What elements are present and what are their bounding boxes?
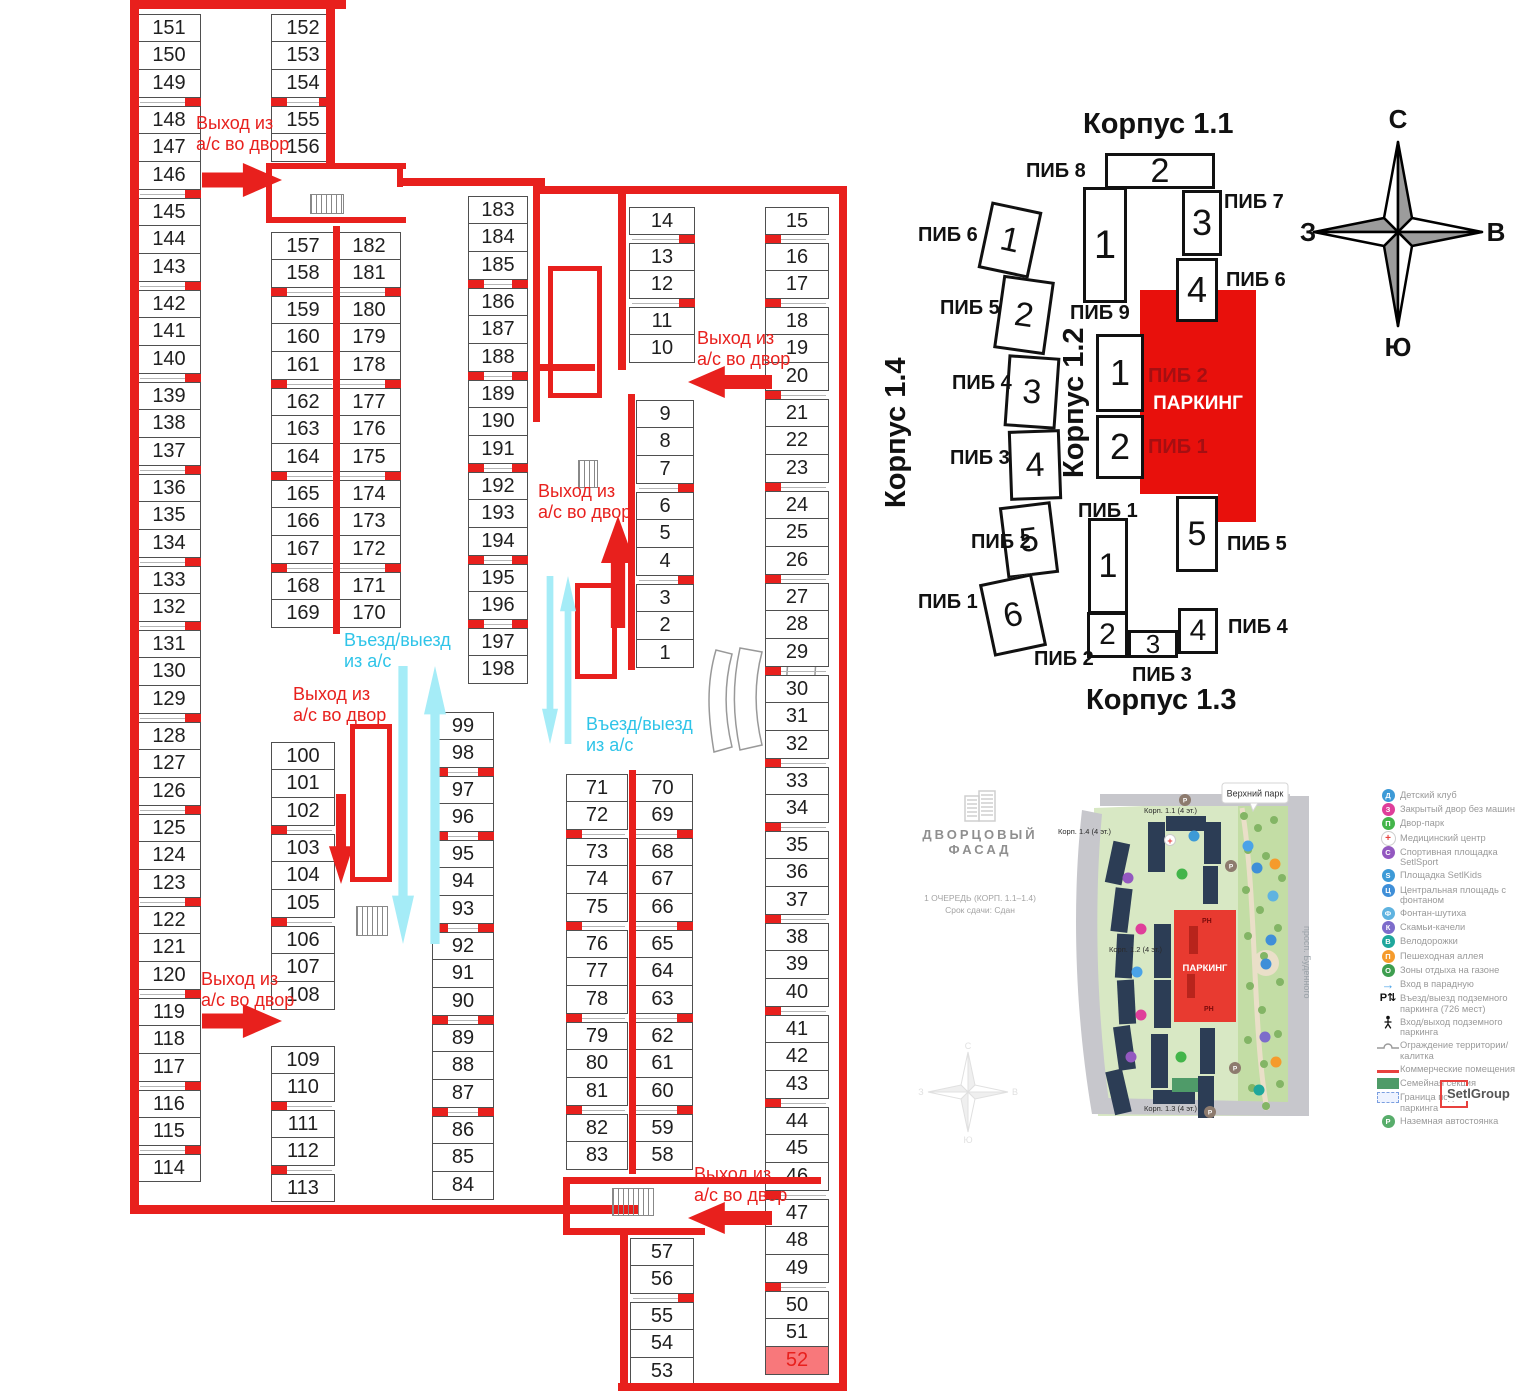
wall-tick xyxy=(271,826,287,834)
parking-stall-103[interactable]: 103 xyxy=(271,834,335,862)
wall-tick xyxy=(432,1016,448,1024)
pib-label: ПИБ 6 xyxy=(1226,269,1286,292)
wall-tick xyxy=(185,1082,201,1090)
wall-tick xyxy=(432,1108,448,1116)
svg-text:З: З xyxy=(918,1087,923,1097)
pib-label: ПИБ 6 xyxy=(918,224,978,247)
wall xyxy=(629,770,636,1174)
parking-stall-102[interactable]: 102 xyxy=(271,798,335,826)
brand-line1: ДВОРЦОВЫЙ xyxy=(918,827,1042,842)
parking-stall-34[interactable]: 34 xyxy=(765,795,829,823)
parking-stall-63[interactable]: 63 xyxy=(632,986,693,1014)
brand-line2: ФАСАД xyxy=(918,842,1042,857)
pib-label: ПИБ 1 xyxy=(1148,436,1208,459)
parking-stall-120[interactable]: 120 xyxy=(137,962,201,990)
parking-stall-45[interactable]: 45 xyxy=(765,1135,829,1163)
parking-stall-68[interactable]: 68 xyxy=(632,838,693,866)
parking-stall-118[interactable]: 118 xyxy=(137,1026,201,1054)
parking-stall-109[interactable]: 109 xyxy=(271,1046,335,1074)
parking-stall-83[interactable]: 83 xyxy=(566,1142,628,1170)
legend-icon-16 xyxy=(1376,1039,1400,1052)
parking-stall-111[interactable]: 111 xyxy=(271,1110,335,1138)
parking-stall-122[interactable]: 122 xyxy=(137,906,201,934)
pib-label: ПИБ 4 xyxy=(1228,616,1288,639)
parking-stall-44[interactable]: 44 xyxy=(765,1107,829,1135)
building-section: 3 xyxy=(1182,190,1222,256)
legend-icon-18 xyxy=(1376,1077,1400,1090)
parking-stall-59[interactable]: 59 xyxy=(632,1114,693,1142)
legend-item: Р⇅Въезд/выезд подземного паркинга (726 м… xyxy=(1376,992,1526,1014)
parking-stall-50[interactable]: 50 xyxy=(765,1291,829,1319)
wall-tick xyxy=(765,915,781,923)
legend-icon-1: Д xyxy=(1376,789,1400,802)
parking-stall-58[interactable]: 58 xyxy=(632,1142,693,1170)
legend-item: ППешеходная аллея xyxy=(1376,950,1526,963)
parking-stall-73[interactable]: 73 xyxy=(566,838,628,866)
wall-tick xyxy=(765,823,781,831)
legend-label: Фонтан-шутиха xyxy=(1400,907,1526,919)
parking-stall-115[interactable]: 115 xyxy=(137,1118,201,1146)
compass-east: В xyxy=(1487,217,1506,247)
building-section: 4 xyxy=(1176,258,1218,322)
stairs-icon xyxy=(612,1188,654,1216)
legend-item: ВВелодорожки xyxy=(1376,935,1526,948)
legend-icon-14: Р⇅ xyxy=(1376,992,1400,1005)
svg-text:Р: Р xyxy=(1183,798,1188,805)
wall xyxy=(620,1228,628,1388)
building-icon xyxy=(959,790,1001,822)
parking-stall-125[interactable]: 125 xyxy=(137,814,201,842)
parking-stall-121[interactable]: 121 xyxy=(137,934,201,962)
svg-text:РН: РН xyxy=(1204,1006,1214,1013)
legend-label: Площадка SetlKids xyxy=(1400,869,1526,881)
parking-stall-87[interactable]: 87 xyxy=(432,1080,494,1108)
compass-south: Ю xyxy=(1385,332,1412,360)
wall-tick xyxy=(478,768,494,776)
setl-logo-text: SetlGroup xyxy=(1447,1086,1512,1101)
parking-stall-113[interactable]: 113 xyxy=(271,1174,335,1202)
legend-item: Ограждение территории/калитка xyxy=(1376,1039,1526,1061)
svg-text:Верхний парк: Верхний парк xyxy=(1227,789,1284,799)
legend-item: РНаземная автостоянка xyxy=(1376,1115,1526,1128)
svg-text:В: В xyxy=(1012,1087,1018,1097)
legend-item: Вход/выход подземного паркинга xyxy=(1376,1016,1526,1038)
building-section: 1 xyxy=(1096,334,1144,412)
parking-stall-57[interactable]: 57 xyxy=(630,1238,694,1266)
parking-stall-84[interactable]: 84 xyxy=(432,1172,494,1200)
wall-tick xyxy=(478,1108,494,1116)
parking-stall-123[interactable]: 123 xyxy=(137,870,201,898)
parking-stall-117[interactable]: 117 xyxy=(137,1054,201,1082)
svg-text:Корп. 1.3 (4 эт.): Корп. 1.3 (4 эт.) xyxy=(1144,1104,1198,1113)
wall-tick xyxy=(478,832,494,840)
parking-stall-114[interactable]: 114 xyxy=(137,1154,201,1182)
legend-label: Вход в парадную xyxy=(1400,978,1526,990)
legend-item: ФФонтан-шутиха xyxy=(1376,907,1526,920)
parking-stall-72[interactable]: 72 xyxy=(566,802,628,830)
master-plan-map: РН РН ПАРКИНГ + Р Р Р Р Верхний парк xyxy=(1052,778,1317,1123)
legend-icon-8: Ф xyxy=(1376,907,1400,920)
building-section: 3 xyxy=(1128,630,1178,658)
legend: ДДетский клубЗЗакрытый двор без машинПДв… xyxy=(1376,789,1526,1129)
svg-text:Корп. 1.1 (4 эт.): Корп. 1.1 (4 эт.) xyxy=(1144,806,1198,815)
wall-tick xyxy=(765,1007,781,1015)
pib-label: ПИБ 2 xyxy=(971,531,1031,554)
legend-item: →Вход в парадную xyxy=(1376,978,1526,991)
parking-stall-86[interactable]: 86 xyxy=(432,1116,494,1144)
parking-stall-43[interactable]: 43 xyxy=(765,1071,829,1099)
compass-rose: С В Ю З xyxy=(1298,98,1510,360)
legend-icon-10: В xyxy=(1376,935,1400,948)
parking-stall-76[interactable]: 76 xyxy=(566,930,628,958)
parking-stall-39[interactable]: 39 xyxy=(765,951,829,979)
wall-tick xyxy=(765,1099,781,1107)
compass-west: З xyxy=(1300,217,1316,247)
wall-tick xyxy=(566,1106,582,1114)
legend-item: ССпортивная площадка SetlSport xyxy=(1376,846,1526,868)
building-section: 5 xyxy=(1176,496,1218,572)
wall-tick xyxy=(677,1014,693,1022)
legend-label: Двор-парк xyxy=(1400,817,1526,829)
parking-stall-64[interactable]: 64 xyxy=(632,958,693,986)
svg-text:Р: Р xyxy=(1229,864,1234,871)
parking-stall-88[interactable]: 88 xyxy=(432,1052,494,1080)
svg-text:Корп. 1.4 (4 эт.): Корп. 1.4 (4 эт.) xyxy=(1058,827,1112,836)
wall xyxy=(130,1205,638,1214)
legend-label: Детский клуб xyxy=(1400,789,1526,801)
parking-stall-48[interactable]: 48 xyxy=(765,1227,829,1255)
parking-stall-81[interactable]: 81 xyxy=(566,1078,628,1106)
parking-stall-37[interactable]: 37 xyxy=(765,887,829,915)
page: 1511501491481471461451441431421411401391… xyxy=(0,0,1526,1400)
parking-stall-78[interactable]: 78 xyxy=(566,986,628,1014)
wall-tick xyxy=(677,922,693,930)
pib-label: ПИБ 5 xyxy=(1227,533,1287,556)
building-section: 2 xyxy=(993,275,1055,356)
svg-text:Р: Р xyxy=(1208,1110,1213,1117)
wall-tick xyxy=(271,918,287,926)
parking-stall-38[interactable]: 38 xyxy=(765,923,829,951)
legend-icon-4: + xyxy=(1376,832,1400,845)
parking-block-label: ПАРКИНГ xyxy=(1142,393,1254,415)
legend-label: Коммерческие помещения xyxy=(1400,1063,1526,1075)
brand-sub1: 1 ОЧЕРЕДЬ (КОРП. 1.1–1.4) xyxy=(918,893,1042,903)
parking-stall-90[interactable]: 90 xyxy=(432,988,494,1016)
parking-stall-110[interactable]: 110 xyxy=(271,1074,335,1102)
pib-label: ПИБ 5 xyxy=(940,297,1000,320)
wall-tick xyxy=(478,1016,494,1024)
wall-tick xyxy=(478,924,494,932)
wall xyxy=(563,1228,705,1235)
wall-tick xyxy=(765,759,781,767)
parking-stall-104[interactable]: 104 xyxy=(271,862,335,890)
parking-stall-51[interactable]: 51 xyxy=(765,1319,829,1347)
mini-compass: С В Ю З xyxy=(916,1040,1026,1150)
legend-item: Коммерческие помещения xyxy=(1376,1063,1526,1076)
parking-stall-71[interactable]: 71 xyxy=(566,774,628,802)
wall xyxy=(563,1177,570,1235)
legend-label: Скамьи-качели xyxy=(1400,921,1526,933)
corpus-title: Корпус 1.4 xyxy=(880,357,913,508)
legend-icon-2: З xyxy=(1376,803,1400,816)
wall-tick xyxy=(677,830,693,838)
wall-tick xyxy=(185,990,201,998)
parking-stall-54[interactable]: 54 xyxy=(630,1330,694,1358)
pib-label: ПИБ 7 xyxy=(1224,191,1284,214)
wall-tick xyxy=(677,1106,693,1114)
parking-stall-119[interactable]: 119 xyxy=(137,998,201,1026)
legend-icon-3: П xyxy=(1376,817,1400,830)
parking-stall-49[interactable]: 49 xyxy=(765,1255,829,1283)
building-section: 2 xyxy=(1105,153,1215,189)
wall-tick xyxy=(271,1102,287,1110)
pib-label: ПИБ 1 xyxy=(1078,500,1138,523)
parking-stall-70[interactable]: 70 xyxy=(632,774,693,802)
building-section: 1 xyxy=(1088,518,1128,614)
wall-tick xyxy=(678,1294,694,1302)
parking-stall-89[interactable]: 89 xyxy=(432,1024,494,1052)
legend-icon-20: Р xyxy=(1376,1115,1400,1128)
legend-label: Наземная автостоянка xyxy=(1400,1115,1526,1127)
compass-north: С xyxy=(1389,104,1408,134)
legend-icon-11: П xyxy=(1376,950,1400,963)
legend-item: ЗЗакрытый двор без машин xyxy=(1376,803,1526,816)
mini-parking-label: ПАРКИНГ xyxy=(1183,963,1229,974)
parking-stall-42[interactable]: 42 xyxy=(765,1043,829,1071)
building-section: 2 xyxy=(1096,415,1144,479)
legend-label: Велодорожки xyxy=(1400,935,1526,947)
parking-stall-40[interactable]: 40 xyxy=(765,979,829,1007)
parking-stall-80[interactable]: 80 xyxy=(566,1050,628,1078)
legend-icon-6: S xyxy=(1376,869,1400,882)
svg-text:Ю: Ю xyxy=(963,1135,972,1145)
wall-tick xyxy=(185,806,201,814)
parking-stall-85[interactable]: 85 xyxy=(432,1144,494,1172)
parking-stall-74[interactable]: 74 xyxy=(566,866,628,894)
brand-sub2: Срок сдачи: Сдан xyxy=(918,905,1042,915)
legend-icon-13: → xyxy=(1376,978,1400,991)
svg-text:+: + xyxy=(1167,836,1172,846)
parking-stall-77[interactable]: 77 xyxy=(566,958,628,986)
corpus-title: Корпус 1.2 xyxy=(1058,327,1091,478)
pib-label: ПИБ 4 xyxy=(952,372,1012,395)
wall-tick xyxy=(566,1014,582,1022)
building-section: 1 xyxy=(1083,187,1127,303)
legend-item: ЦЦентральная площадь с фонтаном xyxy=(1376,884,1526,906)
parking-stall-35[interactable]: 35 xyxy=(765,831,829,859)
pib-label: ПИБ 8 xyxy=(1026,160,1086,183)
parking-stall-106[interactable]: 106 xyxy=(271,926,335,954)
legend-item: КСкамьи-качели xyxy=(1376,921,1526,934)
legend-icon-5: С xyxy=(1376,846,1400,859)
parking-stall-66[interactable]: 66 xyxy=(632,894,693,922)
legend-label: Ограждение территории/калитка xyxy=(1400,1039,1526,1061)
legend-label: Пешеходная аллея xyxy=(1400,950,1526,962)
building-section: 3 xyxy=(1004,354,1061,429)
brand-logo: ДВОРЦОВЫЙ ФАСАД 1 ОЧЕРЕДЬ (КОРП. 1.1–1.4… xyxy=(918,790,1042,915)
parking-stall-112[interactable]: 112 xyxy=(271,1138,335,1166)
parking-stall-101[interactable]: 101 xyxy=(271,770,335,798)
setl-group-logo: SetlGroup xyxy=(1440,1080,1520,1108)
legend-label: Зоны отдыха на газоне xyxy=(1400,964,1526,976)
legend-icon-9: К xyxy=(1376,921,1400,934)
legend-icon-17 xyxy=(1376,1063,1400,1076)
family-section xyxy=(1172,1078,1198,1092)
legend-label: Въезд/выезд подземного паркинга (726 мес… xyxy=(1400,992,1526,1014)
parking-stall-91[interactable]: 91 xyxy=(432,960,494,988)
legend-item: SПлощадка SetlKids xyxy=(1376,869,1526,882)
parking-stall-60[interactable]: 60 xyxy=(632,1078,693,1106)
exit-arrow xyxy=(688,1202,772,1234)
legend-item: ОЗоны отдыха на газоне xyxy=(1376,964,1526,977)
parking-stall-61[interactable]: 61 xyxy=(632,1050,693,1078)
street-label: просп. Буденного xyxy=(1302,926,1312,998)
parking-stall-126[interactable]: 126 xyxy=(137,778,201,806)
wall-tick xyxy=(271,1166,287,1174)
wall xyxy=(618,1383,847,1391)
exit-label: Выход из а/с во двор xyxy=(694,1164,787,1206)
parking-stall-55[interactable]: 55 xyxy=(630,1302,694,1330)
parking-stall-52[interactable]: 52 xyxy=(765,1347,829,1375)
legend-icon-19 xyxy=(1376,1091,1400,1104)
legend-item: +Медицинский центр xyxy=(1376,832,1526,845)
parking-stall-67[interactable]: 67 xyxy=(632,866,693,894)
exit-arrow xyxy=(329,794,353,884)
svg-text:С: С xyxy=(965,1041,972,1051)
parking-stall-79[interactable]: 79 xyxy=(566,1022,628,1050)
wall-tick xyxy=(566,922,582,930)
parking-stall-53[interactable]: 53 xyxy=(630,1358,694,1386)
pib-label: ПИБ 2 xyxy=(1034,648,1094,671)
corpus-title: Корпус 1.3 xyxy=(1086,684,1226,717)
svg-text:Корп. 1.2 (4 эт.): Корп. 1.2 (4 эт.) xyxy=(1109,945,1163,954)
legend-label: Закрытый двор без машин xyxy=(1400,803,1526,815)
exit-label: Выход из а/с во двор xyxy=(201,969,294,1011)
svg-text:Р: Р xyxy=(1233,1066,1238,1073)
parking-stall-82[interactable]: 82 xyxy=(566,1114,628,1142)
legend-label: Спортивная площадка SetlSport xyxy=(1400,846,1526,868)
parking-stall-62[interactable]: 62 xyxy=(632,1022,693,1050)
svg-text:РН: РН xyxy=(1202,918,1212,925)
parking-stall-36[interactable]: 36 xyxy=(765,859,829,887)
stairs-icon xyxy=(356,906,388,936)
building-section: 4 xyxy=(1008,429,1062,501)
legend-label: Центральная площадь с фонтаном xyxy=(1400,884,1526,906)
legend-label: Вход/выход подземного паркинга xyxy=(1400,1016,1526,1038)
pib-label: ПИБ 1 xyxy=(918,591,978,614)
parking-stall-75[interactable]: 75 xyxy=(566,894,628,922)
legend-icon-12: О xyxy=(1376,964,1400,977)
pib-label: ПИБ 3 xyxy=(950,447,1010,470)
corpus-title: Корпус 1.1 xyxy=(1083,108,1218,141)
parking-stall-124[interactable]: 124 xyxy=(137,842,201,870)
wall-tick xyxy=(765,1283,781,1291)
parking-stall-69[interactable]: 69 xyxy=(632,802,693,830)
legend-item: ДДетский клуб xyxy=(1376,789,1526,802)
pib-label: ПИБ 2 xyxy=(1148,365,1208,388)
wall-tick xyxy=(185,898,201,906)
parking-stall-41[interactable]: 41 xyxy=(765,1015,829,1043)
parking-stall-33[interactable]: 33 xyxy=(765,767,829,795)
legend-item: ПДвор-парк xyxy=(1376,817,1526,830)
legend-label: Медицинский центр xyxy=(1400,832,1526,844)
legend-icon-15 xyxy=(1376,1016,1400,1029)
parking-stall-56[interactable]: 56 xyxy=(630,1266,694,1294)
parking-stall-116[interactable]: 116 xyxy=(137,1090,201,1118)
parking-stall-105[interactable]: 105 xyxy=(271,890,335,918)
wall-tick xyxy=(185,1146,201,1154)
wall-tick xyxy=(566,830,582,838)
building-section: 4 xyxy=(1178,608,1218,654)
legend-icon-7: Ц xyxy=(1376,884,1400,897)
parking-stall-65[interactable]: 65 xyxy=(632,930,693,958)
pib-label: ПИБ 9 xyxy=(1070,302,1130,325)
